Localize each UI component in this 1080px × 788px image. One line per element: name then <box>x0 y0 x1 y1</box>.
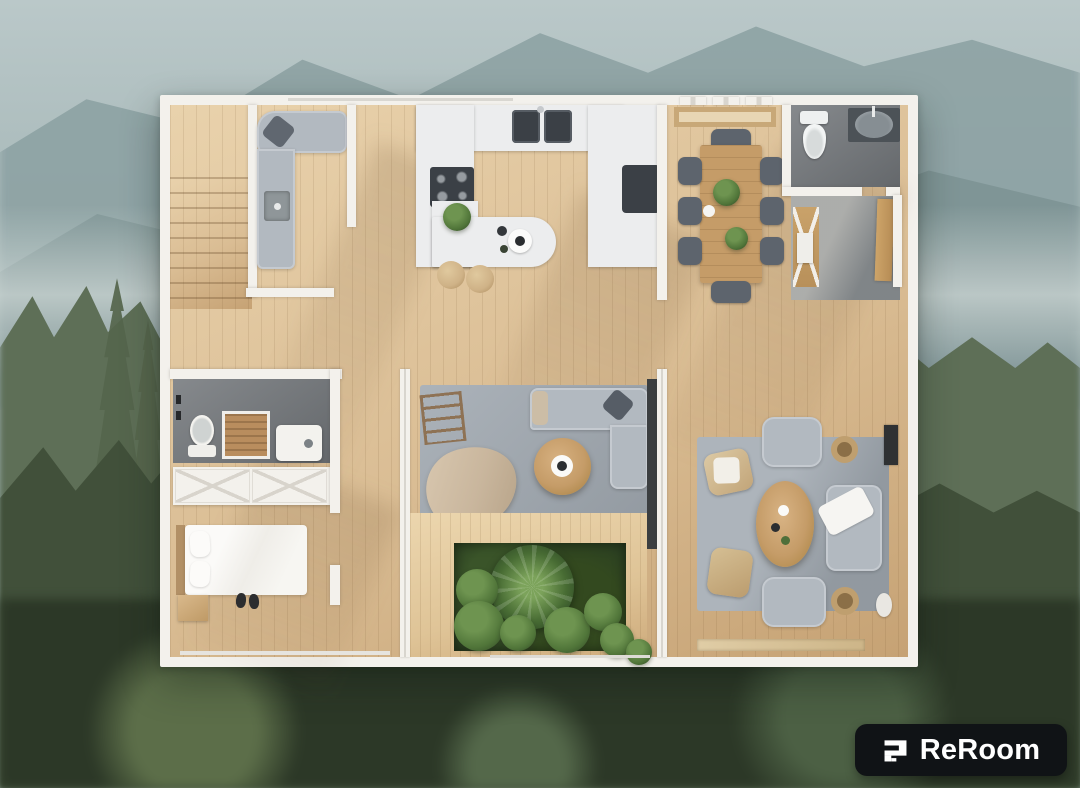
faucet <box>872 106 875 117</box>
table-cup <box>703 205 715 217</box>
coffee-cup <box>497 226 507 236</box>
shrub <box>544 607 590 653</box>
clerestory-window <box>746 97 772 105</box>
interior-wall <box>782 187 862 196</box>
bed-headboard <box>176 525 185 595</box>
table-cup <box>771 523 780 532</box>
clerestory-window <box>713 97 739 105</box>
kitchen-sink-basin <box>544 110 572 143</box>
faucet <box>274 203 281 210</box>
toilet-tank <box>800 111 828 124</box>
bottom-window-groove <box>490 655 650 658</box>
top-window-groove <box>288 98 513 101</box>
interior-wall <box>246 288 334 297</box>
oval-coffee-table <box>756 481 814 567</box>
wall-art <box>884 425 898 465</box>
table-plant <box>713 179 740 206</box>
ensuite-mirror <box>190 415 214 446</box>
interior-wall <box>170 369 342 379</box>
bar-stool <box>437 261 465 289</box>
shrub <box>500 615 536 651</box>
wall-fixture <box>176 395 181 404</box>
closet-wardrobe <box>173 467 330 505</box>
table-cup <box>778 505 789 516</box>
wardrobe-door <box>252 469 327 503</box>
lounge-armchair <box>762 577 826 627</box>
glass-wall-frame <box>400 369 410 657</box>
wood-pergola <box>674 107 776 127</box>
glass-wall-frame <box>657 369 667 657</box>
nightstand <box>178 595 208 621</box>
island-plant <box>443 203 471 231</box>
decor-berry <box>500 245 508 253</box>
screenshot-canvas: { "brand": { "logo_text": "ReRoom", "log… <box>0 0 1080 788</box>
mirror-stand <box>188 445 216 457</box>
chair-cushion <box>713 457 740 484</box>
living-sofa-chaise <box>610 425 648 489</box>
interior-wall <box>657 105 667 300</box>
dark-glass-frame <box>647 379 657 549</box>
coffee-cup <box>515 236 525 246</box>
side-table <box>831 436 858 463</box>
table-plant <box>781 536 790 545</box>
slipper <box>248 594 259 610</box>
decor-ladder <box>420 391 467 445</box>
pillow <box>189 530 211 557</box>
dining-chair <box>760 157 784 185</box>
wardrobe-door <box>175 469 250 503</box>
interior-wall <box>347 105 356 227</box>
interior-wall <box>330 369 340 513</box>
white-throw <box>816 485 875 537</box>
table-tray <box>551 455 573 477</box>
reroom-logo-badge: ReRoom <box>855 724 1067 776</box>
bedroom-window-sill <box>180 651 390 655</box>
bathroom-vanity <box>848 108 900 142</box>
kitchen-faucet <box>537 106 544 113</box>
side-table <box>831 587 859 615</box>
kitchen-sink-basin <box>512 110 540 143</box>
shelf-items <box>797 233 813 263</box>
table-plant <box>725 227 748 250</box>
den-sink <box>264 191 290 221</box>
dining-chair <box>711 281 751 303</box>
shrub <box>626 639 652 665</box>
coffee-tray <box>508 229 532 253</box>
doormat <box>697 639 865 651</box>
reroom-logo-text: ReRoom <box>920 734 1040 767</box>
shrub <box>454 601 504 651</box>
bar-stool <box>466 265 494 293</box>
loveseat <box>826 485 882 571</box>
stair-treads <box>170 177 252 309</box>
drain <box>304 439 313 448</box>
ensuite-vanity <box>222 411 270 459</box>
clerestory-window <box>680 97 706 105</box>
dining-chair <box>678 197 702 225</box>
reroom-logo-icon <box>882 737 909 764</box>
dining-chair <box>678 237 702 265</box>
tray-dish <box>557 461 567 471</box>
entry-shelf <box>793 207 819 287</box>
dining-chair <box>760 197 784 225</box>
interior-wall <box>782 105 791 196</box>
lounge-armchair <box>762 417 822 467</box>
dining-chair <box>760 237 784 265</box>
round-coffee-table <box>534 438 591 495</box>
floor-plan <box>160 95 918 667</box>
interior-wall <box>330 565 340 605</box>
wall-fixture <box>176 411 181 420</box>
interior-wall <box>248 105 257 297</box>
entry-open-door <box>875 199 895 282</box>
door-frame <box>893 195 902 287</box>
staircase <box>170 177 252 309</box>
sofa-blanket <box>532 391 548 425</box>
door-handle <box>876 593 892 617</box>
pillow <box>189 560 210 587</box>
oven-appliance <box>622 165 660 213</box>
dining-chair <box>678 157 702 185</box>
wicker-chair <box>706 546 754 598</box>
ensuite-sink-towels <box>276 425 322 461</box>
